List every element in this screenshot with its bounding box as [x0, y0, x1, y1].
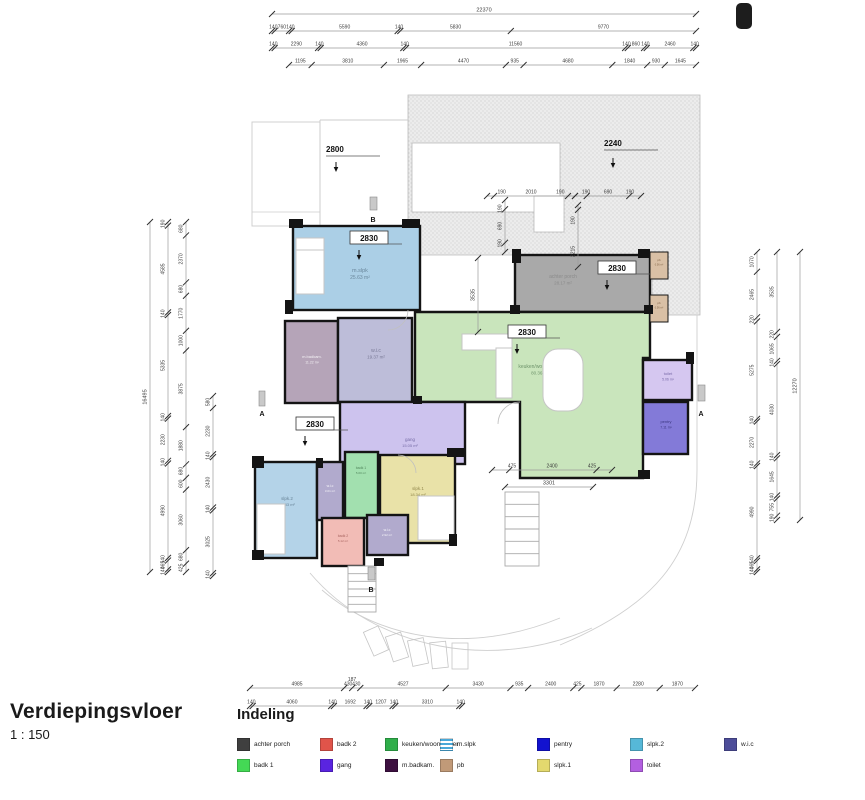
room-label: pb	[657, 258, 661, 262]
room-toilet: toilet5.06 m²	[643, 360, 692, 400]
legend-swatch-icon	[237, 738, 250, 751]
room-label: badk 1	[356, 466, 367, 470]
room-wic-2: w.i.c2.92 m²	[367, 515, 408, 555]
room-area: 11.22 m²	[305, 361, 319, 365]
wall-segment	[374, 558, 384, 566]
dim-label: 140	[770, 493, 776, 502]
room-area: 5.12 m²	[338, 539, 348, 543]
dim-label: 600	[179, 479, 185, 488]
room-label: m.slpk	[352, 268, 368, 274]
legend-column: m.slpkpb	[440, 737, 476, 772]
room-wic-main: w.i.c19.37 m²	[338, 318, 412, 402]
dim-label: 140	[622, 42, 631, 48]
legend-swatch-icon	[385, 759, 398, 772]
dim-label: 4585	[161, 263, 167, 274]
dim-label: 140	[770, 452, 776, 461]
dim-label: 12270	[793, 378, 799, 393]
ceiling-height: 2800	[326, 145, 380, 172]
dim-label: 760	[278, 25, 287, 31]
legend-column: slpk.2toilet	[630, 737, 664, 772]
bed	[257, 504, 285, 554]
dim-label: 1870	[672, 682, 683, 688]
room-area: 25.63 m²	[350, 275, 370, 281]
section-marker-letter: A	[698, 411, 703, 418]
dim-label: 4985	[291, 682, 302, 688]
legend-swatch-icon	[537, 738, 550, 751]
room-area: 7.11 m²	[660, 426, 672, 430]
parking-space	[452, 643, 468, 669]
dim-label: 140	[286, 25, 295, 31]
legend-label: toilet	[647, 762, 661, 769]
wall-segment	[686, 352, 694, 364]
section-marker-bar	[370, 197, 377, 210]
room-pentry: pentry7.11 m²	[643, 402, 688, 454]
dim-label: 1880	[179, 440, 185, 451]
dim-label: 3301	[543, 481, 555, 487]
dim-label: 140	[364, 700, 373, 706]
dim-chain: 140760140559014058309770	[269, 25, 699, 35]
dim-label: 580	[206, 398, 212, 407]
dim-chain: 22370	[269, 8, 699, 18]
floor-plan-canvas: achter porch28.17 m²m.slpk25.63 m²m.badk…	[0, 0, 865, 800]
legend-item: slpk.1	[537, 758, 572, 772]
legend-item: gang	[320, 758, 357, 772]
room-label: toilet	[664, 371, 673, 376]
legend-swatch-icon	[440, 759, 453, 772]
dim-label: 187	[348, 677, 357, 683]
dim-label: 4060	[286, 700, 297, 706]
wall-segment	[512, 249, 521, 263]
height-label: 2800	[326, 145, 344, 154]
section-marker: A	[259, 391, 265, 418]
section-marker: B	[370, 197, 377, 224]
dim-label: 4360	[356, 42, 367, 48]
dim-label: 1840	[624, 59, 635, 65]
height-label: 2240	[604, 139, 622, 148]
legend-swatch-icon	[320, 738, 333, 751]
lower-floor-outline	[252, 122, 320, 226]
legend-label: pb	[457, 762, 464, 769]
legend-item: pentry	[537, 737, 572, 751]
parking-space	[430, 641, 449, 669]
legend-label: slpk.2	[647, 741, 664, 748]
legend-swatch-icon	[440, 738, 453, 751]
section-marker-bar	[698, 385, 705, 401]
dim-chain: 1195381019654470935468018409301645	[286, 59, 699, 69]
legend-swatch-icon	[385, 738, 398, 751]
legend-column: w.i.c	[724, 737, 754, 751]
dim-label: 190	[770, 513, 776, 522]
section-marker-letter: B	[370, 217, 375, 224]
dim-label: 140	[161, 566, 167, 575]
legend-grid: achter porchbadk 1badk 2gangkeuken/woonk…	[237, 737, 862, 785]
parking-space	[407, 638, 428, 667]
dim-label: 190	[497, 190, 506, 196]
dim-label: 22370	[476, 8, 491, 14]
dim-label: 680	[179, 552, 185, 561]
room-badk1: badk 15.00 m²	[345, 452, 378, 518]
dim-label: 140	[161, 413, 167, 422]
dim-label: 140	[691, 42, 700, 48]
room-label: achter porch	[549, 274, 577, 280]
dim-label: 190	[571, 216, 577, 225]
dim-label: 140	[161, 458, 167, 467]
wall-segment	[252, 550, 264, 560]
room-wic-1: w.i.c3.01 m²	[317, 462, 343, 520]
dim-label: 3535	[770, 286, 776, 297]
dim-label: 1965	[397, 59, 408, 65]
dim-label: 2230	[206, 425, 212, 436]
dim-label: 140	[390, 700, 399, 706]
height-label: 2830	[360, 234, 378, 243]
section-marker-letter: B	[368, 587, 373, 594]
dim-label: 4527	[397, 682, 408, 688]
sofa	[496, 348, 512, 398]
wall-segment	[638, 249, 650, 258]
dim-label: 140	[269, 42, 278, 48]
dim-chain: 1904585140533514022301404990140465140	[161, 219, 172, 575]
dining-table	[543, 349, 583, 411]
dim-label: 2370	[179, 253, 185, 264]
legend-item: slpk.2	[630, 737, 664, 751]
legend-column: pentryslpk.1	[537, 737, 572, 772]
dim-label: 3430	[473, 682, 484, 688]
dim-label: 140	[395, 25, 404, 31]
room-label: m.badkam.	[302, 354, 322, 359]
skylight	[534, 196, 564, 232]
dim-label: 1207	[375, 700, 386, 706]
legend-item: pb	[440, 758, 476, 772]
stairs	[505, 492, 539, 566]
parking-space	[363, 626, 388, 656]
legend-item: toilet	[630, 758, 664, 772]
dim-label: 2290	[291, 42, 302, 48]
wall-segment	[510, 305, 520, 314]
dim-label: 755	[770, 503, 776, 512]
legend-item: m.slpk	[440, 737, 476, 751]
dim-label: 16495	[143, 389, 149, 404]
dim-label: 3310	[422, 700, 433, 706]
room-label: badk 2	[338, 534, 349, 538]
dim-chain: 4985430430452734309352400425187022801870	[247, 682, 698, 692]
dim-label: 680	[179, 467, 185, 476]
dim-label: 425	[179, 563, 185, 572]
legend-swatch-icon	[630, 759, 643, 772]
dim-label: 140	[328, 700, 337, 706]
wall-segment	[402, 219, 420, 228]
room-label: slpk.1	[412, 486, 424, 491]
dim-label: 2230	[161, 434, 167, 445]
dim-chain: 3535220106514040301401645140755190	[770, 249, 781, 523]
legend-label: achter porch	[254, 741, 290, 748]
wall-segment	[449, 534, 457, 546]
section-marker-bar	[259, 391, 265, 406]
dim-label: 140	[770, 358, 776, 367]
legend-label: pentry	[554, 741, 572, 748]
dim-label: 140	[315, 42, 324, 48]
dim-label: 4470	[458, 59, 469, 65]
dim-label: 11560	[509, 42, 523, 48]
room-area: 15.05 m²	[402, 443, 418, 448]
room-shape	[338, 318, 412, 402]
dim-label: 1070	[750, 256, 756, 267]
dim-label: 935	[511, 59, 520, 65]
floor-plan-page: achter porch28.17 m²m.slpk25.63 m²m.badk…	[0, 0, 865, 800]
wall-segment	[447, 448, 465, 457]
dim-label: 3535	[471, 289, 477, 301]
dim-label: 190	[626, 190, 635, 196]
wall-segment	[285, 300, 293, 314]
legend: Indeling achter porchbadk 1badk 2gangkeu…	[237, 706, 862, 785]
room-label: w.i.c	[384, 528, 391, 532]
section-marker: A	[698, 385, 705, 418]
room-m-badkam: m.badkam.11.22 m²	[285, 321, 338, 403]
room-label: pentry	[660, 419, 671, 424]
dim-label: 935	[515, 682, 524, 688]
drawing-scale: 1 : 150	[10, 727, 182, 742]
height-label: 2830	[306, 420, 324, 429]
room-area: 5.06 m²	[662, 378, 675, 382]
legend-label: gang	[337, 762, 351, 769]
dim-label: 190	[161, 219, 167, 228]
dim-label: 140	[750, 460, 756, 469]
legend-item: w.i.c	[724, 737, 754, 751]
height-label: 2830	[608, 264, 626, 273]
title-block: Verdiepingsvloer 1 : 150	[10, 700, 182, 742]
dim-label: 475	[508, 464, 517, 470]
dim-label: 220	[750, 315, 756, 324]
legend-swatch-icon	[237, 759, 250, 772]
wall-segment	[638, 470, 650, 479]
drawing-title: Verdiepingsvloer	[10, 700, 182, 724]
legend-title: Indeling	[237, 706, 862, 723]
dim-label: 1770	[179, 307, 185, 318]
dim-label: 2460	[664, 42, 675, 48]
dim-label: 140	[269, 25, 278, 31]
bed	[296, 238, 324, 294]
dim-chain: 12270	[793, 249, 804, 523]
legend-label: slpk.1	[554, 762, 571, 769]
room-area: 2.92 m²	[382, 533, 392, 537]
dim-label: 1645	[675, 59, 686, 65]
dim-label: 2430	[206, 477, 212, 488]
legend-column: badk 2gang	[320, 737, 357, 772]
legend-swatch-icon	[724, 738, 737, 751]
dim-label: 5830	[450, 25, 461, 31]
dim-label: 140	[401, 42, 410, 48]
dim-label: 1065	[770, 343, 776, 354]
section-marker-letter: A	[259, 411, 264, 418]
dim-label: 2215	[571, 246, 577, 257]
down-arrow-icon	[334, 167, 339, 172]
legend-label: m.badkam.	[402, 762, 434, 769]
room-label: pb	[657, 301, 661, 305]
dim-chain: 3301	[502, 481, 596, 491]
dim-label: 2400	[546, 464, 557, 470]
dim-label: 1692	[345, 700, 356, 706]
dim-label: 425	[573, 682, 582, 688]
dim-label: 4990	[750, 506, 756, 517]
room-area: 0.56 m²	[655, 307, 664, 310]
dim-label: 1000	[179, 335, 185, 346]
dim-label: 2270	[750, 437, 756, 448]
dim-label: 140	[206, 570, 212, 579]
dim-label: 680	[179, 285, 185, 294]
room-label: w.i.c	[327, 484, 334, 488]
dim-label: 220	[770, 330, 776, 339]
dim-label: 140	[641, 42, 650, 48]
dim-chain: 580223014024301403025140	[206, 393, 217, 579]
dim-chain: 10702465220527514022701404990140465140	[750, 249, 761, 575]
dim-label: 1870	[593, 682, 604, 688]
legend-item: badk 1	[237, 758, 290, 772]
wall-segment	[252, 456, 264, 468]
legend-label: m.slpk	[457, 741, 476, 748]
room-area: 19.37 m²	[367, 355, 385, 360]
room-label: gang	[405, 437, 416, 442]
legend-swatch-icon	[320, 759, 333, 772]
dim-label: 690	[604, 190, 613, 196]
dim-chain: 6802370680177010003875188068060030606804…	[179, 219, 190, 575]
height-label: 2830	[518, 328, 536, 337]
room-badk2: badk 25.12 m²	[322, 518, 364, 566]
legend-swatch-icon	[537, 759, 550, 772]
legend-label: badk 1	[254, 762, 274, 769]
drawing-edge-marker	[736, 3, 752, 29]
dim-label: 860	[632, 42, 641, 48]
dim-label: 4680	[562, 59, 573, 65]
wall-segment	[316, 458, 323, 468]
dim-label: 2400	[545, 682, 556, 688]
down-arrow-icon	[303, 441, 308, 446]
room-area: 3.01 m²	[325, 489, 335, 493]
dim-label: 4990	[161, 505, 167, 516]
legend-column: achter porchbadk 1	[237, 737, 290, 772]
dim-label: 680	[179, 224, 185, 233]
dim-label: 3060	[179, 514, 185, 525]
dim-label: 1195	[295, 59, 306, 65]
dim-label: 140	[206, 451, 212, 460]
legend-item: badk 2	[320, 737, 357, 751]
section-marker-bar	[368, 567, 375, 580]
dim-label: 930	[652, 59, 661, 65]
room-label: w.i.c	[371, 348, 381, 354]
dim-label: 425	[588, 464, 597, 470]
dim-label: 2010	[525, 190, 536, 196]
legend-label: w.i.c	[741, 741, 754, 748]
dim-label: 2465	[750, 289, 756, 300]
bed	[418, 496, 454, 540]
dim-label: 4030	[770, 404, 776, 415]
dim-label: 140	[456, 700, 465, 706]
dim-label: 140	[750, 416, 756, 425]
wall-segment	[644, 305, 653, 314]
dim-label: 5335	[161, 360, 167, 371]
dim-chain: 16495	[143, 219, 154, 575]
room-pb1: pb0.56 m²	[650, 252, 668, 279]
door-arc	[498, 402, 520, 424]
dim-label: 140	[161, 309, 167, 318]
wall-segment	[289, 219, 303, 228]
dim-label: 2280	[633, 682, 644, 688]
room-area: 0.56 m²	[655, 264, 664, 267]
dim-label: 140	[206, 505, 212, 514]
dim-chain: 14022901404360140115601408601402460140	[269, 42, 699, 52]
legend-item: achter porch	[237, 737, 290, 751]
room-shape	[345, 452, 378, 518]
dim-label: 690	[498, 222, 504, 231]
dim-label: 5275	[750, 364, 756, 375]
room-area: 5.00 m²	[356, 471, 366, 475]
dim-label: 1645	[770, 471, 776, 482]
dim-label: 3875	[179, 383, 185, 394]
dim-label: 190	[498, 239, 504, 248]
dim-label: 140	[247, 700, 256, 706]
legend-swatch-icon	[630, 738, 643, 751]
dim-label: 190	[582, 190, 591, 196]
dim-label: 3810	[342, 59, 353, 65]
legend-label: badk 2	[337, 741, 357, 748]
dim-label: 190	[498, 204, 504, 213]
room-area: 28.17 m²	[554, 281, 572, 286]
room-label: slpk.2	[281, 496, 293, 501]
dim-label: 190	[556, 190, 565, 196]
dim-label: 140	[750, 566, 756, 575]
wall-segment	[413, 396, 422, 404]
dim-label: 3025	[206, 536, 212, 547]
dim-label: 9770	[598, 25, 609, 31]
dim-label: 5590	[339, 25, 350, 31]
